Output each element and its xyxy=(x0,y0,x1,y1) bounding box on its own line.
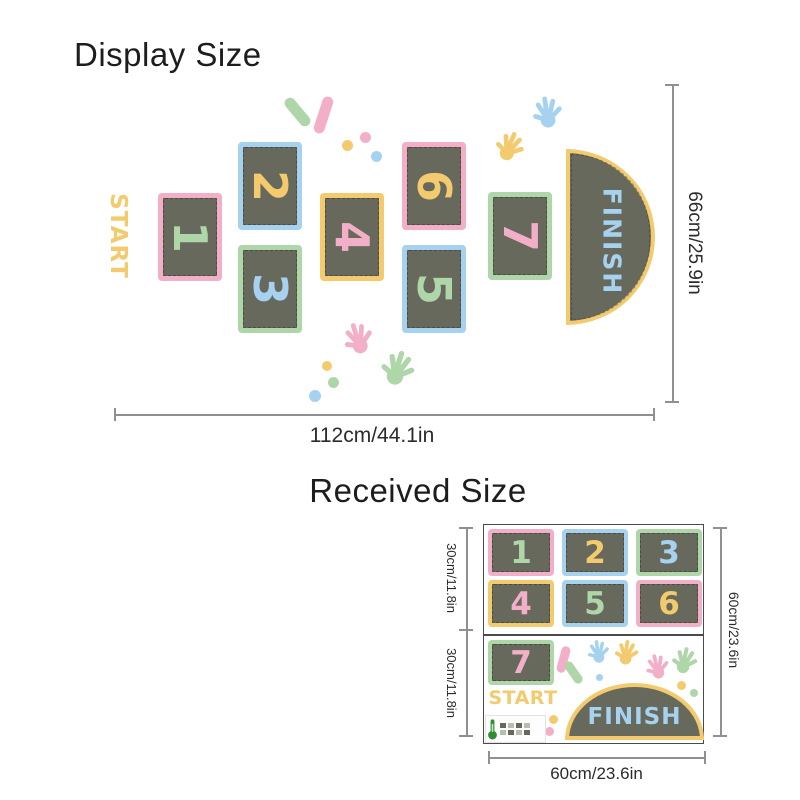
display-tile-4: 4 xyxy=(320,193,384,281)
tile-number: 3 xyxy=(640,533,698,572)
confetti-stick-icon xyxy=(312,95,334,135)
confetti-stick-icon xyxy=(282,95,312,128)
received-sheet: 1 2 3 4 5 6 7 START FINISH xyxy=(483,524,704,744)
dimension-tick xyxy=(713,527,727,529)
received-lower-half-label: 30cm/11.8in xyxy=(445,639,459,727)
tile-number: 2 xyxy=(566,533,624,572)
display-tile-7: 7 xyxy=(488,192,552,280)
tile-number: 2 xyxy=(231,159,309,213)
dimension-tick xyxy=(665,84,679,86)
dimension-tick xyxy=(459,527,473,529)
confetti-dot-icon xyxy=(545,727,554,736)
confetti-dot-icon xyxy=(549,715,558,724)
display-size-heading: Display Size xyxy=(74,36,262,74)
confetti-stick-icon xyxy=(563,660,585,686)
confetti-dot-icon xyxy=(360,132,371,143)
display-height-label: 66cm/25.9in xyxy=(685,183,705,303)
dimension-tick xyxy=(713,735,727,737)
tile-number: 3 xyxy=(231,262,309,316)
tile-number: 5 xyxy=(395,262,473,316)
dimension-tick xyxy=(653,408,655,421)
height-dimension-line xyxy=(720,528,722,737)
thermometer-icon xyxy=(487,718,498,740)
received-tile-4: 4 xyxy=(488,580,554,627)
height-dimension-line xyxy=(672,85,674,403)
display-tile-6: 6 xyxy=(402,142,466,230)
received-height-label: 60cm/23.6in xyxy=(726,580,742,680)
display-start-label: START xyxy=(105,188,131,284)
hand-icon xyxy=(584,638,613,667)
tile-number: 6 xyxy=(640,584,698,623)
tile-number: 7 xyxy=(492,644,550,681)
display-tile-2: 2 xyxy=(238,142,302,230)
received-start-label: START xyxy=(487,687,559,709)
confetti-dot-icon xyxy=(371,151,382,162)
received-tile-7: 7 xyxy=(488,640,554,685)
tile-number: 4 xyxy=(492,584,550,623)
dimension-tick xyxy=(704,751,706,764)
hand-icon xyxy=(486,124,533,171)
width-dimension-line xyxy=(488,757,705,759)
display-width-label: 112cm/44.1in xyxy=(272,424,472,448)
dimension-tick xyxy=(488,751,490,764)
confetti-dot-icon xyxy=(596,674,603,681)
display-tile-1: 1 xyxy=(158,193,222,281)
tile-number: 4 xyxy=(313,210,391,264)
hand-icon xyxy=(527,93,567,133)
dimension-tick xyxy=(114,408,116,421)
tile-number: 1 xyxy=(492,533,550,572)
hand-icon xyxy=(610,637,644,671)
sheet-fold-line xyxy=(484,634,703,636)
received-upper-half-label: 30cm/11.8in xyxy=(445,534,459,622)
care-instructions-label xyxy=(485,715,546,743)
display-finish-label: FINISH xyxy=(598,162,627,322)
confetti-dot-icon xyxy=(342,140,353,151)
confetti-dot-icon xyxy=(309,390,321,402)
dimension-tick xyxy=(459,629,473,631)
dimension-tick xyxy=(665,401,679,403)
product-size-infographic: Display Size START 1 2 3 4 5 6 7 FINISH … xyxy=(0,0,800,800)
confetti-dot-icon xyxy=(328,377,339,388)
tile-number: 1 xyxy=(151,210,229,264)
display-tile-5: 5 xyxy=(402,245,466,333)
display-finish-zone: FINISH xyxy=(566,149,655,325)
confetti-dot-icon xyxy=(690,689,698,697)
received-finish-label: FINISH xyxy=(569,704,700,730)
received-size-heading: Received Size xyxy=(268,472,568,510)
mini-diagram-icon xyxy=(500,723,530,735)
hand-icon xyxy=(336,317,381,362)
display-tile-3: 3 xyxy=(238,245,302,333)
received-width-label: 60cm/23.6in xyxy=(496,764,697,784)
received-tile-3: 3 xyxy=(636,529,702,576)
received-tile-5: 5 xyxy=(562,580,628,627)
received-tile-2: 2 xyxy=(562,529,628,576)
dimension-tick xyxy=(459,735,473,737)
received-finish-zone: FINISH xyxy=(565,683,704,740)
tile-number: 7 xyxy=(481,209,559,263)
tile-number: 5 xyxy=(566,584,624,623)
width-dimension-line xyxy=(115,414,655,416)
received-tile-6: 6 xyxy=(636,580,702,627)
confetti-dot-icon xyxy=(677,681,686,690)
half-dimension-line xyxy=(466,528,468,737)
received-tile-1: 1 xyxy=(488,529,554,576)
confetti-dot-icon xyxy=(322,361,332,371)
tile-number: 6 xyxy=(395,159,473,213)
